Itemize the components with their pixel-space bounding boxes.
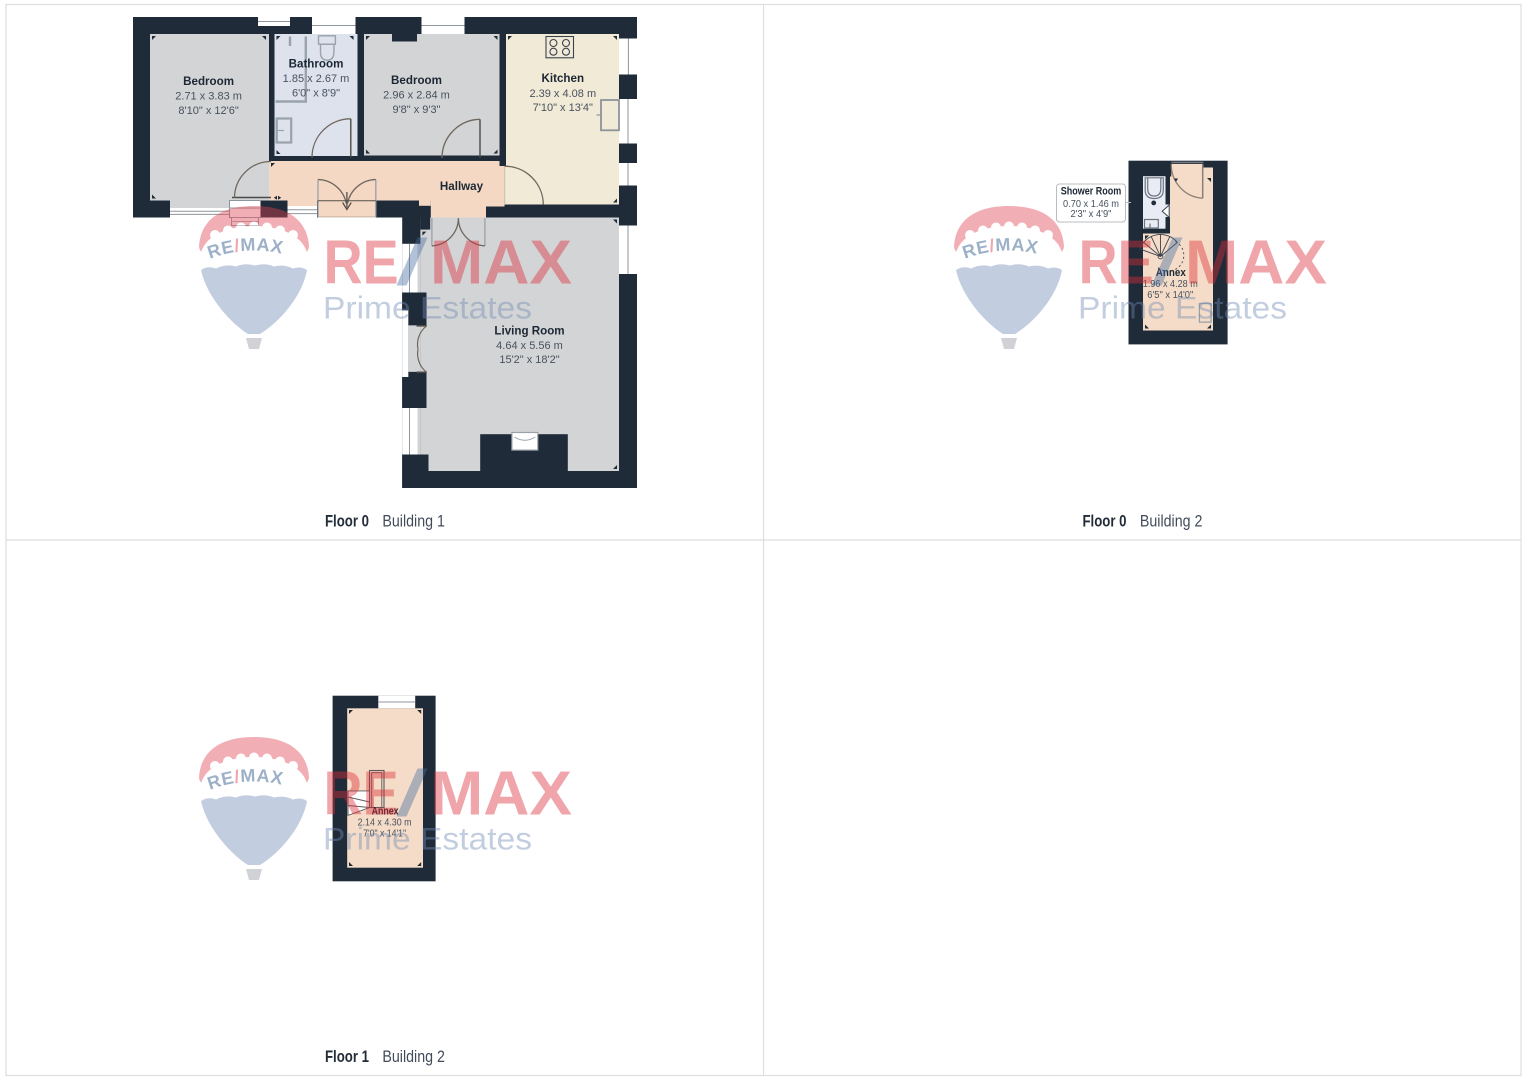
svg-text:9'8" x 9'3": 9'8" x 9'3": [392, 104, 440, 116]
svg-text:Building 2: Building 2: [1140, 513, 1203, 531]
svg-text:2.96 x 2.84 m: 2.96 x 2.84 m: [383, 90, 450, 102]
svg-text:6'0" x 8'9": 6'0" x 8'9": [292, 87, 340, 99]
svg-text:2'3" x 4'9": 2'3" x 4'9": [1071, 209, 1112, 220]
svg-text:Bedroom: Bedroom: [391, 74, 442, 87]
svg-text:1.85 x 2.67 m: 1.85 x 2.67 m: [283, 73, 350, 85]
svg-text:Floor 1: Floor 1: [325, 1048, 369, 1066]
svg-text:Kitchen: Kitchen: [542, 72, 585, 85]
svg-text:8'10" x 12'6": 8'10" x 12'6": [178, 105, 238, 117]
svg-text:Building 2: Building 2: [382, 1048, 445, 1066]
svg-text:7'10" x 13'4": 7'10" x 13'4": [533, 102, 593, 114]
svg-text:Shower Room: Shower Room: [1061, 186, 1122, 198]
svg-text:Hallway: Hallway: [440, 180, 484, 193]
svg-text:4.64 x 5.56 m: 4.64 x 5.56 m: [496, 340, 563, 352]
svg-text:2.71 x 3.83 m: 2.71 x 3.83 m: [175, 91, 242, 103]
svg-text:Building 1: Building 1: [382, 513, 445, 531]
svg-text:Floor 0: Floor 0: [1083, 513, 1127, 531]
svg-text:15'2" x 18'2": 15'2" x 18'2": [499, 354, 559, 366]
svg-text:Bedroom: Bedroom: [183, 75, 234, 88]
svg-text:Bathroom: Bathroom: [289, 58, 344, 71]
svg-text:Floor 0: Floor 0: [325, 513, 369, 531]
svg-text:Living Room: Living Room: [494, 324, 564, 337]
svg-text:2.39 x 4.08 m: 2.39 x 4.08 m: [529, 88, 596, 100]
